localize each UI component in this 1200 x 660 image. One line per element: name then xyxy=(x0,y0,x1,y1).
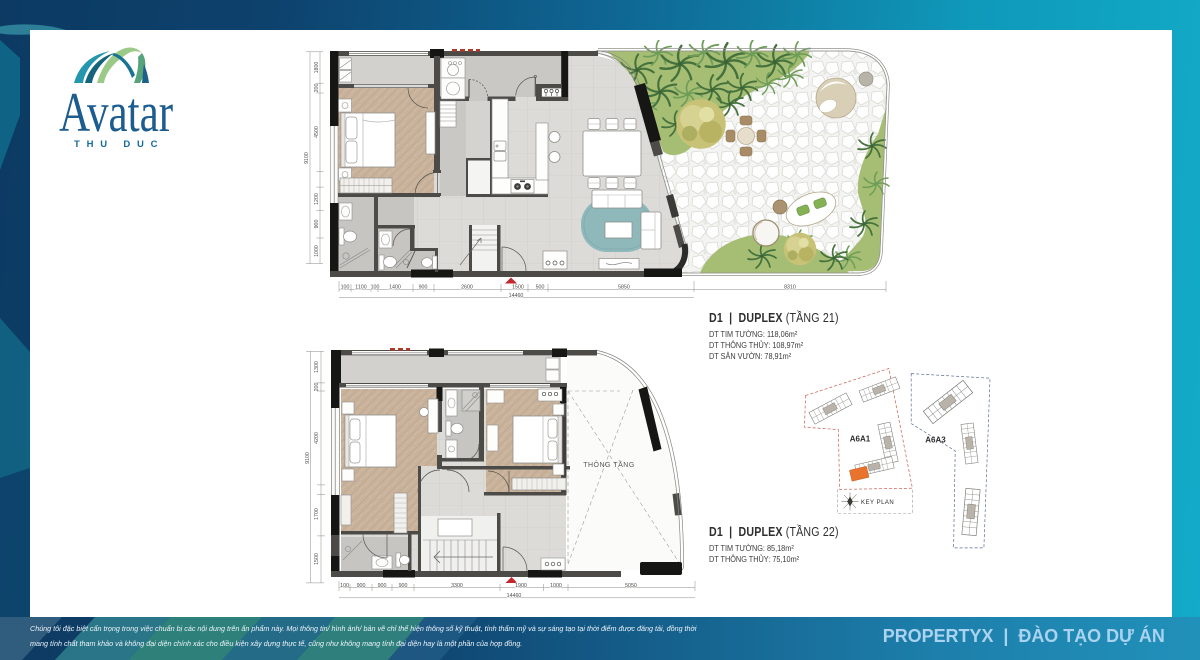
svg-text:1700: 1700 xyxy=(314,508,320,520)
svg-text:8310: 8310 xyxy=(784,285,796,291)
svg-text:1000: 1000 xyxy=(314,245,320,257)
svg-text:4200: 4200 xyxy=(314,432,320,444)
svg-text:5050: 5050 xyxy=(625,583,637,589)
svg-text:900: 900 xyxy=(378,583,387,589)
svg-text:1000: 1000 xyxy=(550,583,562,589)
svg-text:4500: 4500 xyxy=(314,126,320,138)
svg-text:9100: 9100 xyxy=(304,152,310,164)
svg-text:1400: 1400 xyxy=(389,285,401,291)
svg-text:200: 200 xyxy=(314,383,320,392)
svg-text:1100: 1100 xyxy=(355,285,366,291)
svg-text:A6A3: A6A3 xyxy=(925,436,946,445)
svg-text:100: 100 xyxy=(340,583,349,589)
svg-text:1300: 1300 xyxy=(314,361,320,373)
svg-text:1200: 1200 xyxy=(314,193,320,205)
svg-text:900: 900 xyxy=(357,583,366,589)
svg-text:500: 500 xyxy=(536,285,545,291)
svg-text:3300: 3300 xyxy=(451,583,463,589)
svg-text:14460: 14460 xyxy=(507,593,522,599)
svg-text:14460: 14460 xyxy=(509,293,524,299)
svg-text:200: 200 xyxy=(314,84,320,93)
svg-text:1500: 1500 xyxy=(314,553,320,565)
svg-text:1900: 1900 xyxy=(515,583,527,589)
svg-text:100: 100 xyxy=(341,285,350,291)
svg-text:900: 900 xyxy=(399,583,408,589)
svg-text:2600: 2600 xyxy=(461,285,473,291)
svg-text:1500: 1500 xyxy=(512,285,524,291)
svg-text:5850: 5850 xyxy=(618,285,630,291)
svg-text:1800: 1800 xyxy=(314,62,320,74)
svg-text:9100: 9100 xyxy=(305,452,311,464)
svg-text:900: 900 xyxy=(314,220,320,229)
svg-text:KEY PLAN: KEY PLAN xyxy=(861,500,894,506)
svg-text:100: 100 xyxy=(371,285,380,291)
svg-text:900: 900 xyxy=(419,285,428,291)
svg-text:A6A1: A6A1 xyxy=(850,435,871,444)
